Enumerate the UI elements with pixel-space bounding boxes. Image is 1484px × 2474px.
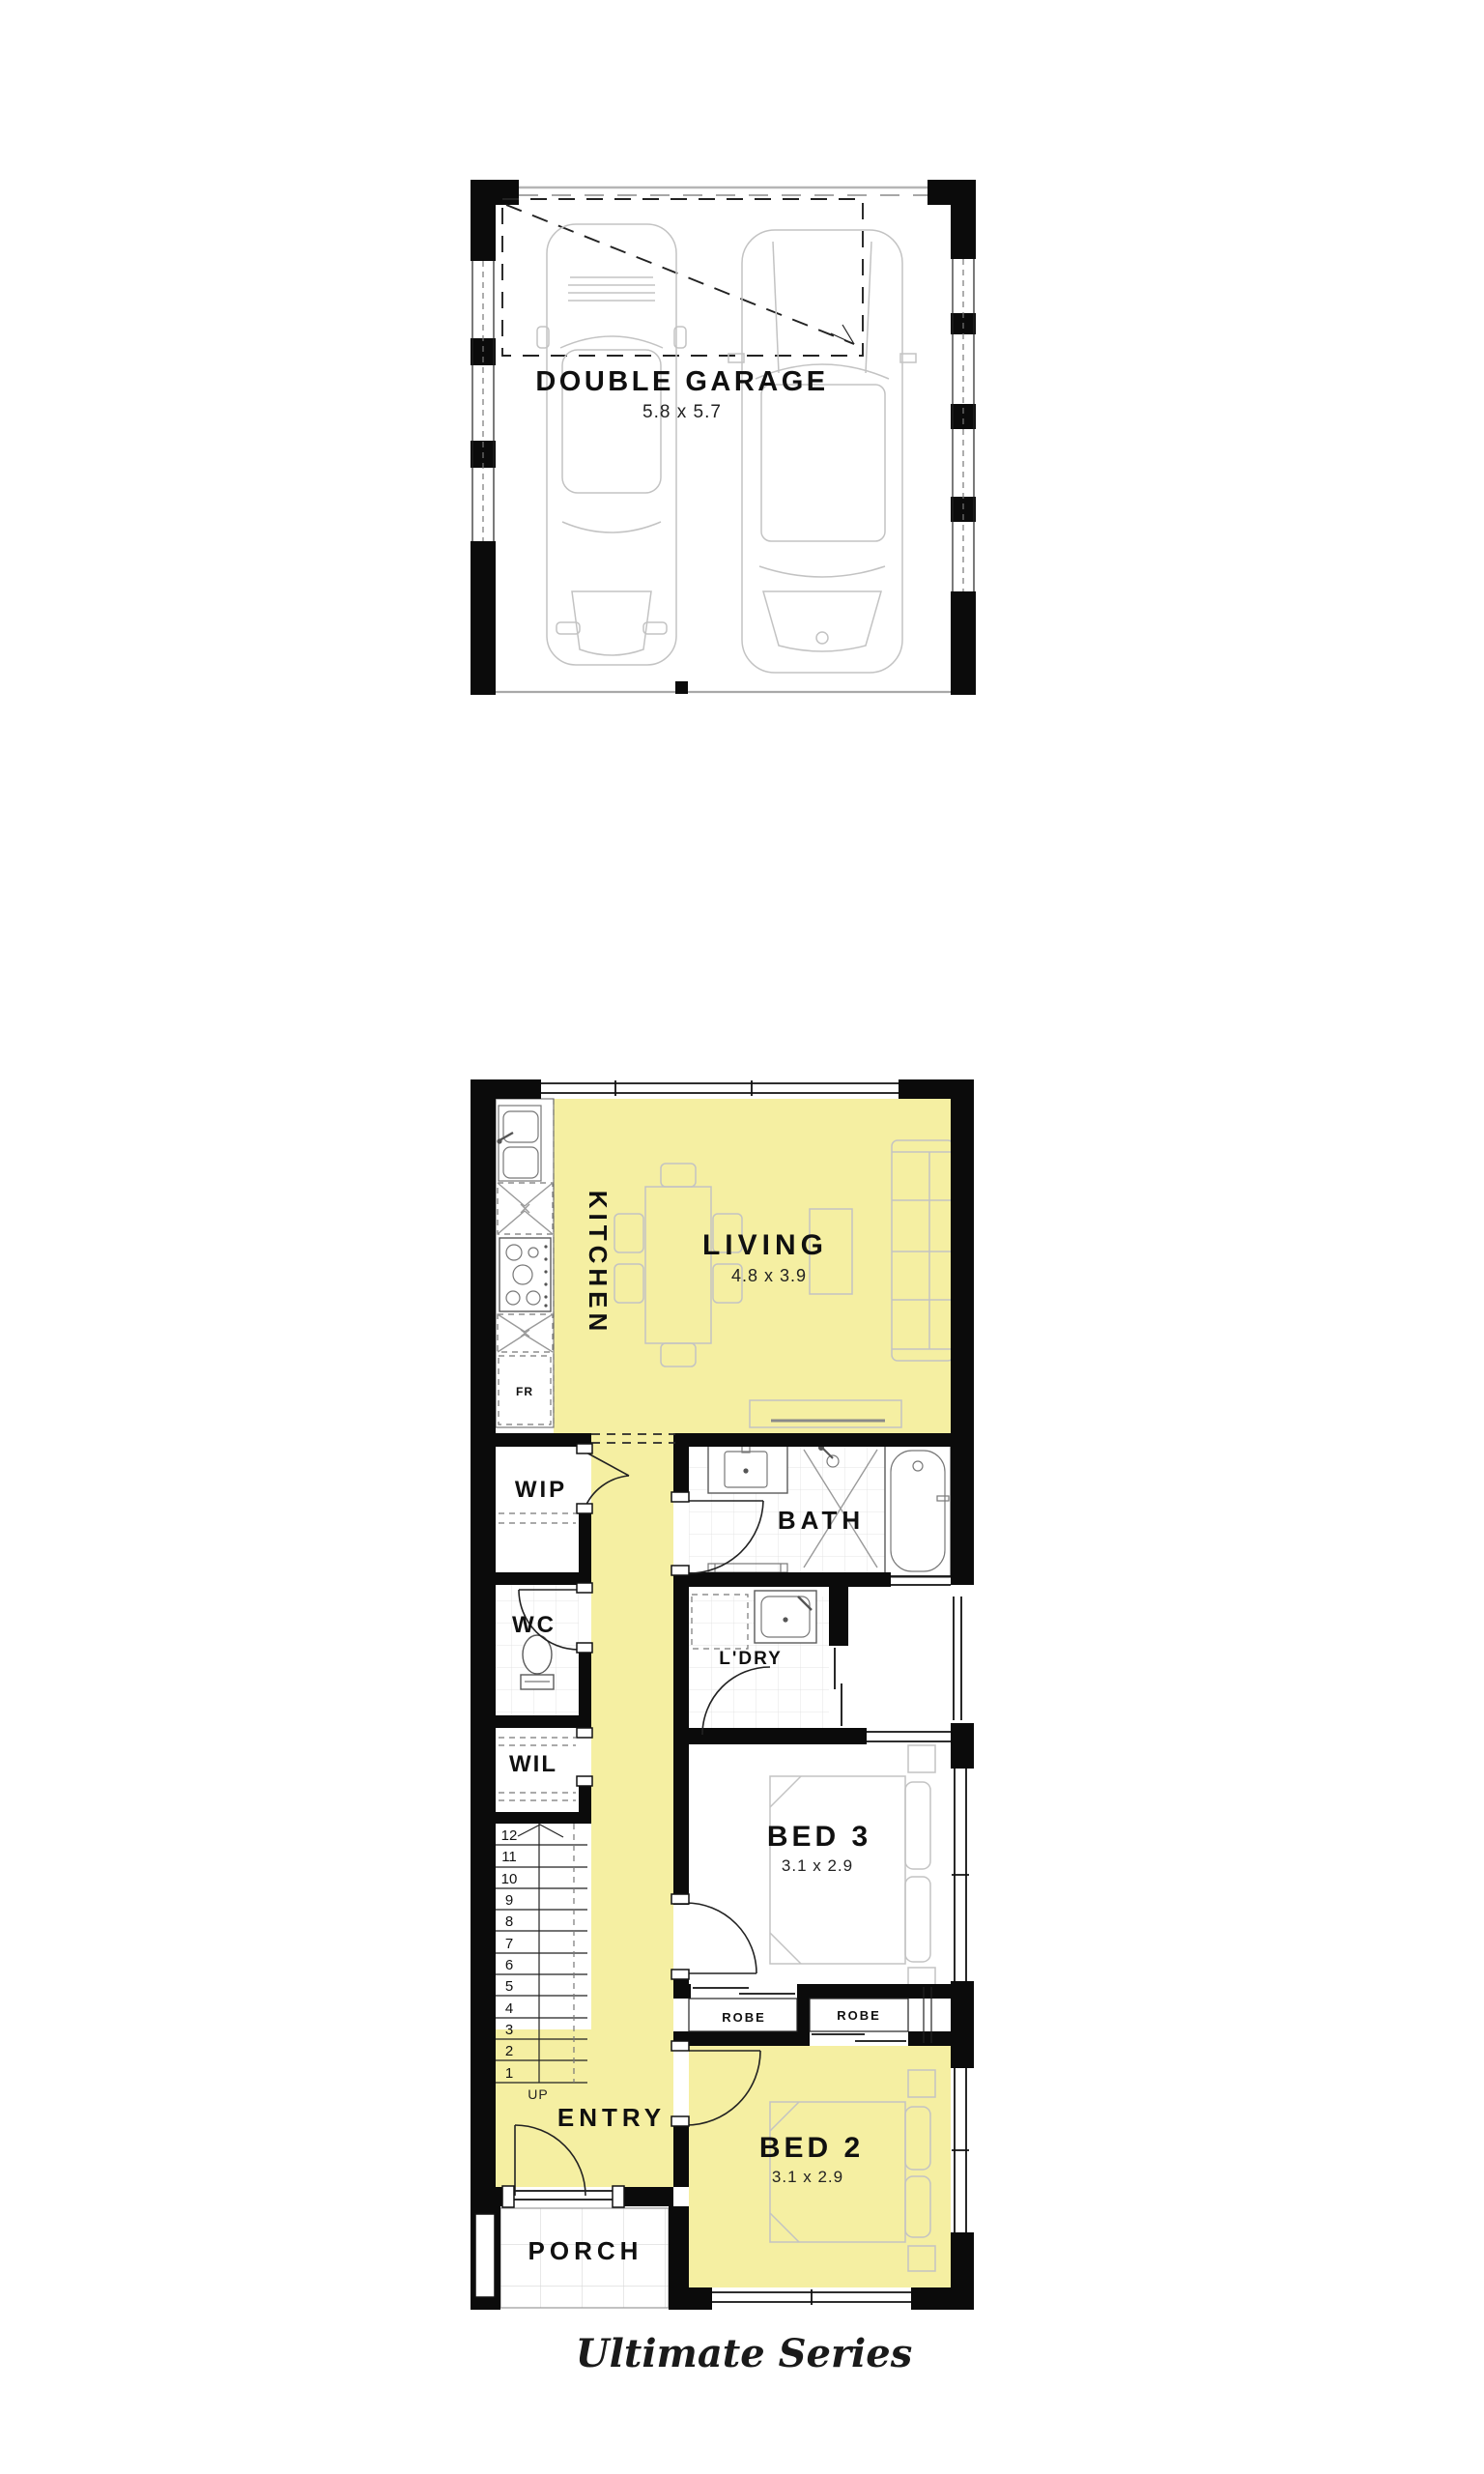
robe-right-slider <box>812 2034 906 2041</box>
bed3-door <box>686 1903 756 1973</box>
dishwasher-icon <box>498 1183 553 1234</box>
bed2-floor <box>689 2046 951 2287</box>
kitchen-sink-icon <box>497 1106 541 1181</box>
car-left-icon <box>537 224 686 665</box>
floor-plan-page: DOUBLE GARAGE 5.8 x 5.7 <box>0 0 1484 2474</box>
toilet-icon <box>521 1635 554 1689</box>
stairs-up-label: UP <box>528 2086 548 2102</box>
stair-number: 2 <box>505 2043 513 2059</box>
side-notch-window <box>954 1597 961 1720</box>
garage-dimensions: 5.8 x 5.7 <box>642 402 722 422</box>
robe-right-label: ROBE <box>837 2008 881 2023</box>
bed2-bottom-window <box>712 2289 911 2305</box>
robe-left-label: ROBE <box>722 2010 766 2025</box>
pantry-shelves <box>499 1513 576 1523</box>
garage-label: DOUBLE GARAGE <box>535 366 828 397</box>
garage-diagonal-marker <box>506 205 854 344</box>
kitchen-bench: FR <box>496 1099 554 1427</box>
cooktop-icon <box>499 1238 551 1311</box>
living-dimensions: 4.8 x 3.9 <box>731 1266 807 1285</box>
stair-number: 5 <box>505 1978 513 1995</box>
entry-label: ENTRY <box>557 2103 666 2132</box>
living-label: LIVING <box>702 1229 828 1261</box>
stair-number: 8 <box>505 1913 513 1930</box>
living-window <box>541 1080 899 1096</box>
stair-number: 10 <box>501 1871 518 1887</box>
stair-number: 7 <box>505 1936 513 1952</box>
laundry-trough-icon <box>755 1591 816 1643</box>
ground-floor-plan: FR <box>471 1079 974 2310</box>
bed2-dimensions: 3.1 x 2.9 <box>772 2168 843 2186</box>
porch-column <box>475 2214 495 2297</box>
bathtub-icon <box>885 1445 951 1577</box>
wc-label: WC <box>512 1612 556 1638</box>
porch-label: PORCH <box>528 2236 643 2265</box>
garage-left-windows <box>471 261 496 541</box>
pantry-cabinet-icon <box>498 1314 553 1352</box>
garage-dashed-overhang <box>502 199 863 356</box>
bed3-label: BED 3 <box>767 1821 871 1853</box>
bed3-top-window <box>867 1732 951 1741</box>
stair-number: 6 <box>505 1957 513 1973</box>
entry-threshold <box>510 2191 616 2200</box>
stair-number: 4 <box>505 2000 513 2017</box>
stair-number: 3 <box>505 2022 513 2038</box>
stair-number: 9 <box>505 1892 513 1909</box>
stair-number: 11 <box>501 1849 517 1865</box>
fridge-label: FR <box>516 1385 533 1398</box>
garage-plan: DOUBLE GARAGE 5.8 x 5.7 <box>471 180 976 695</box>
wip-label: WIP <box>515 1477 567 1503</box>
floor-plan-canvas: DOUBLE GARAGE 5.8 x 5.7 <box>0 0 1484 2474</box>
bed2-label: BED 2 <box>759 2132 864 2164</box>
bed3-dimensions: 3.1 x 2.9 <box>782 1856 853 1875</box>
ldry-label: L'DRY <box>719 1649 783 1669</box>
car-right-icon <box>728 230 916 673</box>
stair-number: 12 <box>501 1827 518 1844</box>
vanity-icon <box>708 1445 787 1493</box>
series-title: Ultimate Series <box>576 2331 912 2376</box>
bed3-side-window <box>952 1769 969 1981</box>
bath-label: BATH <box>778 1506 865 1535</box>
fridge-space: FR <box>499 1356 551 1424</box>
robe-left-slider <box>693 1988 795 1994</box>
ldry-cavity-slider <box>835 1648 842 1726</box>
bed2-side-window <box>952 2068 969 2232</box>
stair-number: 1 <box>505 2065 513 2082</box>
garage-center-pier <box>675 681 688 694</box>
kitchen-label: KITCHEN <box>584 1191 613 1337</box>
wil-label: WIL <box>509 1751 557 1777</box>
